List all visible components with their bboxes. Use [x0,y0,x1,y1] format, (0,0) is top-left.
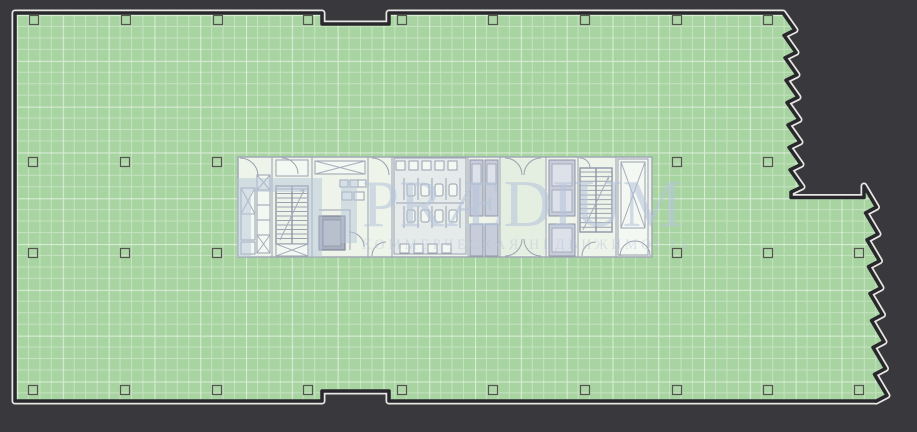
structural-column [581,16,590,25]
structural-column [304,386,313,395]
structural-column [489,386,498,395]
structural-column [489,16,498,25]
structural-column [673,158,682,167]
structural-column [764,386,773,395]
structural-column [30,16,39,25]
structural-column [398,386,407,395]
structural-column [855,249,864,258]
structural-column [214,16,223,25]
structural-column [398,16,407,25]
watermark-tagline-text: КОММЕРЧЕСКАЯ НЕДВИЖИМОСТЬ [362,237,692,253]
watermark-brand-text: PRÆDIUM [362,167,682,241]
structural-column [29,386,38,395]
structural-column [855,386,864,395]
structural-column [29,158,38,167]
structural-column [29,249,38,258]
structural-column [673,249,682,258]
structural-column [764,158,773,167]
structural-column [121,158,130,167]
structural-column [673,16,682,25]
structural-column [213,249,222,258]
structural-column [121,249,130,258]
structural-column [213,158,222,167]
structural-column [213,386,222,395]
structural-column [122,16,131,25]
structural-column [764,249,773,258]
structural-column [764,16,773,25]
structural-column [304,16,313,25]
structural-column [673,386,682,395]
structural-column [121,386,130,395]
floorplan-screenshot: PRÆDIUM КОММЕРЧЕСКАЯ НЕДВИЖИМОСТЬ [0,0,917,432]
structural-column [581,386,590,395]
floor-plan-canvas: PRÆDIUM КОММЕРЧЕСКАЯ НЕДВИЖИМОСТЬ [0,0,917,432]
